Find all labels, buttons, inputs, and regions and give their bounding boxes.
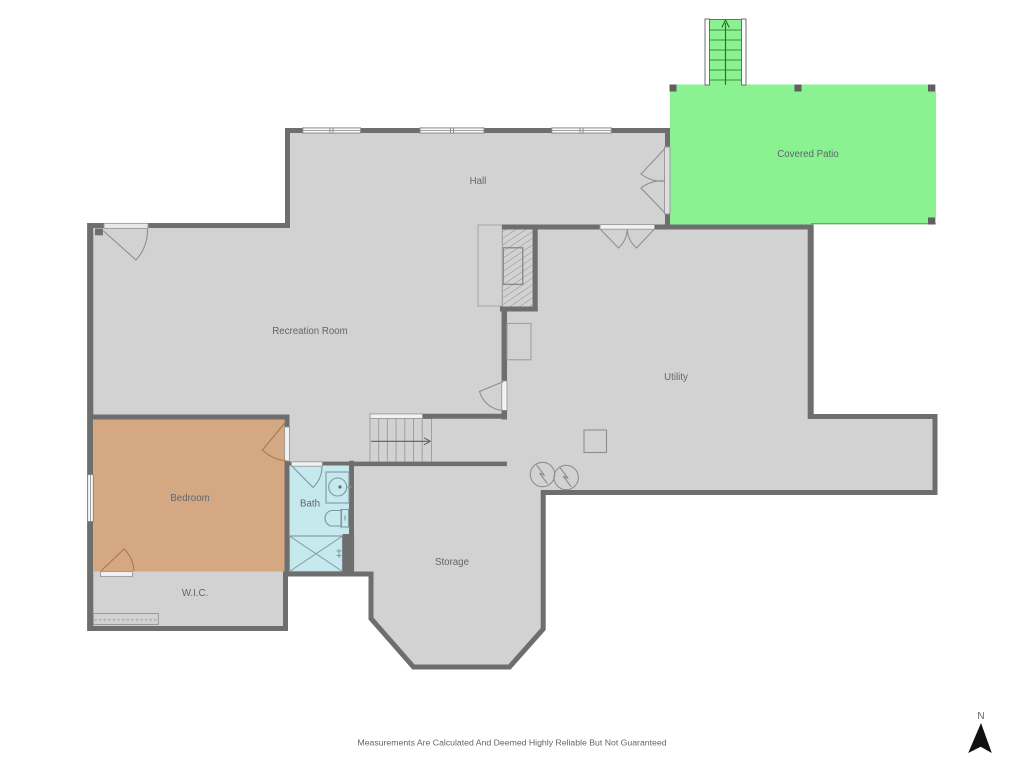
svg-text:N: N [977,711,984,722]
svg-text:Measurements Are Calculated An: Measurements Are Calculated And Deemed H… [357,738,666,748]
svg-text:Hall: Hall [470,176,487,187]
svg-text:Covered Patio: Covered Patio [777,149,838,160]
svg-text:Bath: Bath [300,499,320,510]
svg-text:Storage: Storage [435,557,469,568]
svg-text:Utility: Utility [664,372,688,383]
svg-text:W.I.C.: W.I.C. [182,588,208,599]
svg-text:Bedroom: Bedroom [170,493,209,504]
svg-text:Recreation Room: Recreation Room [272,326,347,337]
